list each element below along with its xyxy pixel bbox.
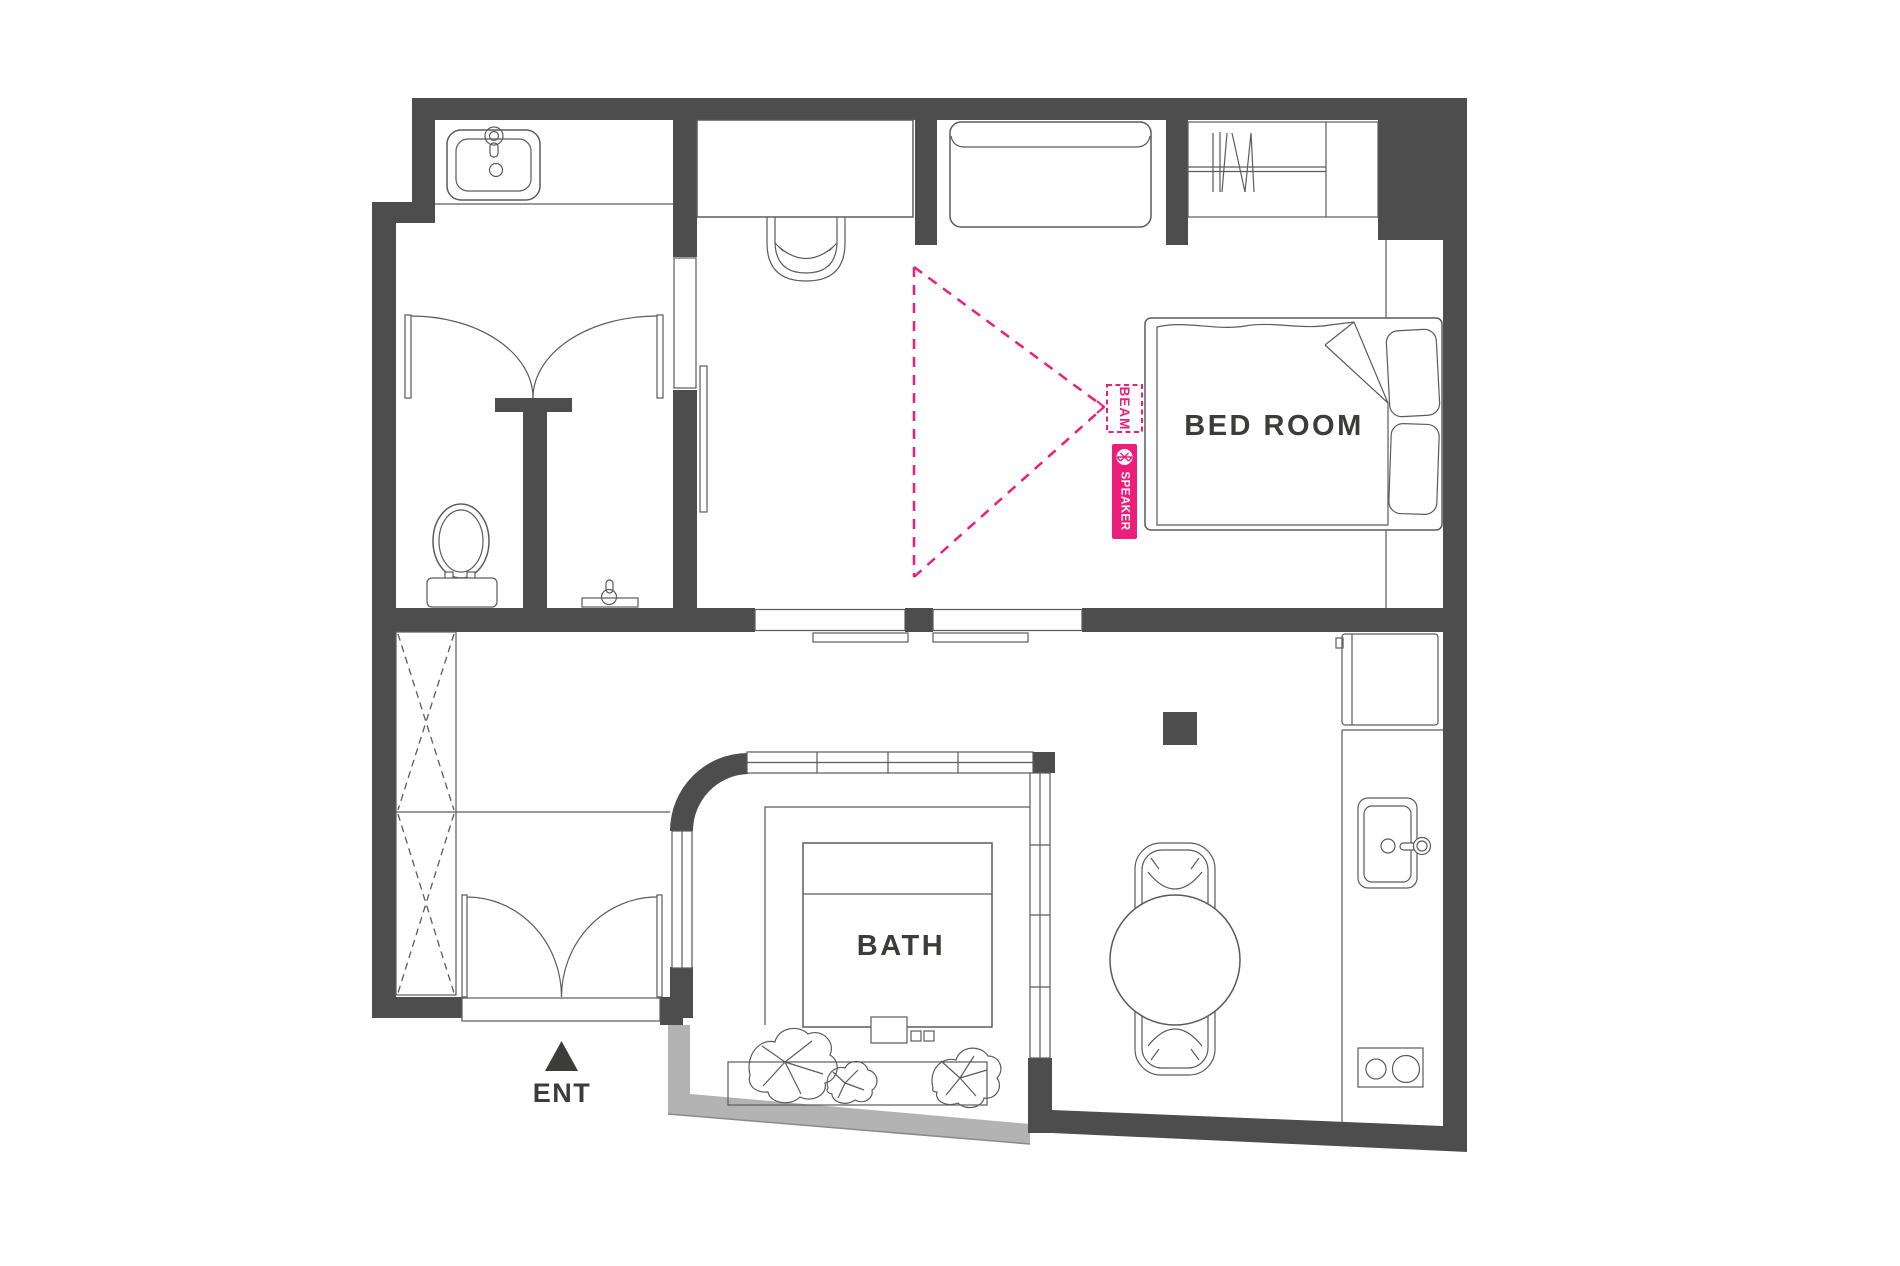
bath-glass-walls: [672, 752, 1050, 1058]
kitchen-counter-lines: [1342, 730, 1443, 1124]
wall-pillar-desk-bedroom: [915, 120, 937, 245]
closet-x-lower: [398, 814, 454, 993]
entry-swing-arc-right: [562, 897, 658, 997]
bedroom-label: BED ROOM: [1184, 410, 1364, 442]
chair-bottom-ticks: [1151, 1049, 1199, 1060]
door-leaf-left: [405, 315, 411, 398]
entry-leaf-right: [657, 895, 662, 997]
kitchen-sink: [1358, 798, 1431, 888]
hall-door-opening: [674, 258, 696, 388]
cooktop-body: [1358, 1048, 1423, 1087]
wall-toilet-partition: [523, 400, 547, 608]
burner-small: [1366, 1059, 1386, 1079]
bath-inner-outline: [765, 807, 1030, 1025]
workspace: [697, 120, 913, 281]
sliding-opening-right: [933, 610, 1082, 631]
entrance-arrow-icon: [545, 1041, 578, 1071]
plant-3: [932, 1048, 1001, 1107]
entry-leaf-left: [462, 895, 467, 997]
entrance-double-door[interactable]: [462, 895, 662, 997]
vanity-sink: [447, 127, 540, 200]
door-leaf-right: [657, 315, 663, 398]
chair-outer: [767, 217, 845, 281]
wall-bath-left-block: [670, 967, 693, 1018]
bath-label: BATH: [857, 930, 945, 962]
wall-openings: [462, 258, 1082, 1021]
sofa: [950, 122, 1151, 227]
bedroom: BED ROOM: [950, 122, 1442, 608]
chair-seat-arc: [779, 247, 833, 259]
beam-apex-arrow-icon: [1097, 401, 1104, 413]
sliding-panel-left: [813, 633, 908, 642]
sink-drain: [490, 164, 503, 177]
cooktop: [1358, 1048, 1423, 1087]
ksink-drain: [1381, 839, 1395, 853]
hall-sliding-panel: [700, 366, 707, 512]
wall-middle-horizontal: [374, 608, 755, 632]
floor-plan-svg: BED ROOM BATH: [0, 0, 1900, 1266]
toilet-room: [427, 504, 497, 607]
bath-room: BATH: [672, 752, 1050, 1108]
chair-inner: [775, 217, 837, 273]
clothes-hangers: [1213, 132, 1254, 192]
plant-2: [827, 1061, 877, 1103]
wall-bath-bottom-corner: [1028, 1058, 1052, 1133]
sofa-outer: [950, 122, 1151, 227]
entrance-threshold: [462, 998, 660, 1021]
burner-large: [1393, 1056, 1420, 1083]
beam-edge-upper: [914, 267, 1104, 407]
plant-1-branches: [762, 1041, 823, 1094]
speaker-tag-label: SPEAKER: [1119, 471, 1131, 530]
wall-toilet-top-band: [495, 398, 572, 412]
wall-pillar-sofa-closet: [1166, 120, 1188, 245]
beam-edge-lower: [914, 407, 1104, 577]
kitchen: [1336, 634, 1443, 1124]
closet-x-upper: [398, 634, 454, 810]
wall-bath-curved-corner: [670, 753, 748, 831]
chair-bottom-back-arc: [1148, 1029, 1202, 1046]
entry-hall: [396, 632, 670, 997]
planter: [728, 1028, 1001, 1107]
wall-bedroom-bottom: [1082, 608, 1443, 632]
chair-top-ticks: [1151, 858, 1199, 869]
wall-bottom-left: [372, 997, 464, 1018]
dining-area: [1110, 843, 1240, 1075]
wall-bath-block-upper: [673, 120, 697, 257]
wardrobe: [1188, 122, 1378, 217]
hand-basin: [582, 598, 638, 607]
wall-bath-glass-corner-top: [1033, 752, 1055, 773]
column-pillar-square: [1163, 712, 1197, 745]
bathroom-double-door[interactable]: [405, 315, 663, 398]
chair-top-back-arc: [1148, 872, 1202, 889]
entrance-label: ENT: [533, 1078, 592, 1108]
floor-plan-canvas: BED ROOM BATH: [0, 0, 1900, 1266]
walls: [372, 98, 1467, 1152]
tub-step: [871, 1017, 907, 1043]
sliding-opening-left: [755, 610, 905, 631]
toilet-bowl-outer: [433, 504, 489, 578]
wall-middle-pillar: [905, 608, 933, 632]
door-swing-arc-right: [533, 316, 657, 398]
plant-1: [749, 1028, 837, 1102]
hanger-rail: [1188, 167, 1326, 172]
wall-bath-block-lower: [673, 390, 697, 632]
ksink-faucet-ring: [1414, 838, 1431, 855]
wall-top: [412, 98, 1467, 120]
powder-room: [582, 580, 638, 607]
door-swing-arc-left: [411, 316, 533, 398]
toilet-tank: [427, 578, 497, 607]
basin-faucet-ring: [602, 590, 617, 605]
wall-left-upper: [412, 98, 435, 202]
tub-control-2: [924, 1031, 934, 1041]
fridge: [1336, 634, 1438, 725]
toilet-bowl-inner: [439, 510, 483, 572]
ledge-vertical: [668, 1025, 690, 1095]
sink-inner: [456, 139, 531, 191]
round-table: [1110, 895, 1240, 1025]
desk: [697, 120, 913, 217]
chair-ticks: [775, 243, 837, 251]
wardrobe-box: [1188, 122, 1378, 217]
basin-faucet-stem: [606, 580, 613, 593]
entrance-marker: ENT: [533, 1041, 592, 1108]
wall-top-right-block: [1378, 120, 1443, 240]
entry-swing-arc-left: [467, 897, 562, 997]
sliding-panel-right: [933, 633, 1028, 642]
wall-bottom-slanted: [1052, 1110, 1467, 1152]
fridge-body: [1342, 634, 1438, 725]
wall-left-step: [372, 202, 435, 223]
storage-closet-box: [396, 632, 456, 995]
desk-chair: [767, 217, 845, 281]
plant-2-branches: [833, 1070, 864, 1098]
wall-right: [1443, 98, 1467, 1138]
planter-box: [728, 1062, 987, 1105]
vanity-bathroom: [405, 127, 673, 398]
speaker-tag: SPEAKER: [1112, 444, 1137, 539]
speaker-annotation: BEAM SPEAKER: [914, 267, 1142, 577]
beam-tag-label: BEAM: [1117, 387, 1132, 431]
tub-control-1: [911, 1031, 921, 1041]
sofa-back-line: [951, 136, 1150, 147]
